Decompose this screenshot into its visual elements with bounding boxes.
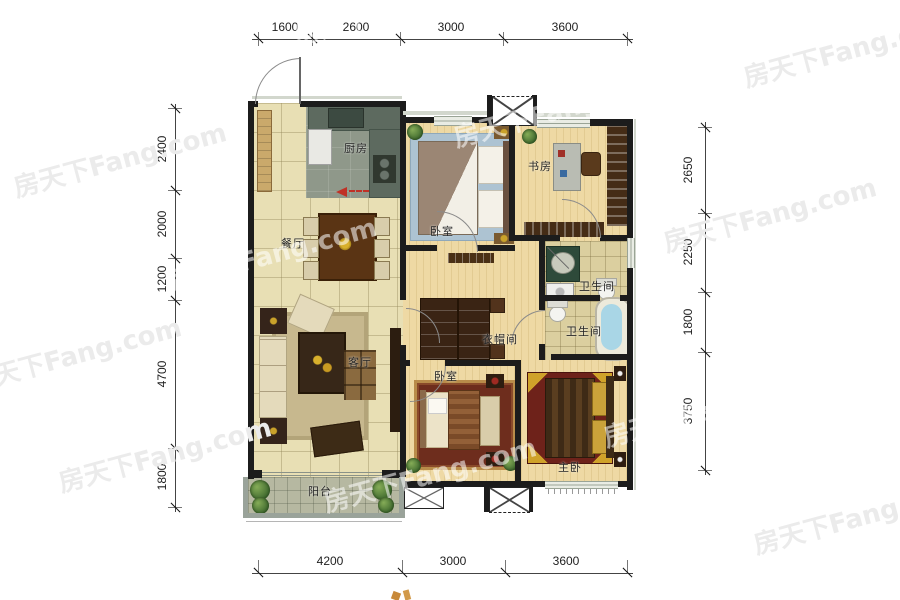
room-label-bedroom-mid: 卧室: [434, 368, 458, 384]
fridge: [308, 129, 332, 165]
balcony-slider-track: [262, 472, 382, 473]
wall: [545, 295, 600, 301]
nightstand: [486, 452, 504, 466]
dimension-line-left: [175, 104, 176, 512]
dresser: [448, 253, 494, 263]
plant: [522, 129, 537, 144]
bathtub-water: [601, 304, 622, 350]
desk-item: [560, 170, 567, 177]
window: [627, 238, 635, 268]
bay-window-box: [404, 487, 444, 509]
plant: [252, 497, 269, 514]
pillow: [478, 146, 504, 184]
window-sill: [403, 111, 489, 115]
headboard: [606, 376, 614, 458]
window: [537, 119, 590, 128]
entry-door-arc: [255, 58, 301, 104]
dimension-label-right-3: 1800: [681, 292, 697, 352]
pillow: [478, 190, 504, 228]
wall: [539, 344, 545, 360]
room-label-study: 书房: [528, 158, 552, 174]
dimension-label-right-2: 2250: [681, 222, 697, 282]
room-label-cloakroom: 衣帽间: [482, 331, 518, 347]
floor-plan-canvas: 厨房 餐厅 客厅 卧室 书房 卫生间 卫生间 衣帽间 卧室 主卧 阳台 1600…: [0, 0, 900, 600]
bookshelf: [607, 126, 627, 226]
room-label-bathroom-upper: 卫生间: [579, 278, 615, 294]
desk-chair: [581, 152, 601, 176]
wall: [248, 103, 254, 479]
balcony-railing: [243, 513, 405, 518]
plant: [407, 124, 423, 140]
wall: [403, 117, 434, 123]
window-sill: [634, 119, 636, 490]
cropped-ornament: [403, 589, 411, 600]
shoe-cabinet: [257, 110, 272, 192]
dimension-label-right-4: 3750: [681, 381, 697, 441]
dimension-line-bottom: [252, 573, 633, 574]
wall: [509, 119, 515, 241]
room-label-bedroom-top: 卧室: [430, 223, 454, 239]
dining-chair: [303, 261, 319, 280]
side-table: [260, 308, 287, 334]
dining-chair: [374, 217, 390, 236]
wall: [551, 354, 633, 360]
wall: [400, 103, 406, 300]
blanket: [448, 390, 480, 450]
sofa: [259, 336, 287, 418]
dimension-line-right: [705, 122, 706, 475]
nightstand: [614, 366, 626, 381]
wall: [627, 119, 633, 238]
dining-chair: [374, 239, 390, 258]
balcony-railing-line: [246, 521, 402, 522]
dining-chair: [303, 239, 319, 258]
wall: [627, 268, 633, 490]
wardrobe-cabinet: [490, 298, 505, 313]
balcony-slider-track: [262, 475, 382, 476]
master-blanket: [545, 378, 595, 458]
dimension-label-top-3: 3000: [421, 20, 481, 34]
room-label-dining: 餐厅: [281, 235, 305, 251]
dimension-label-left-4: 4700: [155, 344, 171, 404]
window-hatch: [548, 489, 618, 494]
stove: [373, 155, 396, 183]
nightstand: [486, 374, 504, 388]
watermark: 房天下Fang.com: [739, 2, 900, 94]
dimension-label-top-4: 3600: [535, 20, 595, 34]
entry-door-leaf: [299, 57, 301, 104]
room-label-living: 客厅: [348, 354, 372, 370]
wall: [515, 235, 560, 241]
dining-chair: [374, 261, 390, 280]
wall: [403, 360, 410, 366]
watermark: 房天下Fang.com: [9, 112, 230, 204]
room-label-master-bedroom: 主卧: [558, 459, 582, 475]
toilet-tank: [547, 300, 568, 308]
wall: [403, 245, 437, 251]
entrance-arrow: [336, 187, 347, 197]
dining-chair: [303, 217, 319, 236]
dimension-label-top-1: 1600: [255, 20, 315, 34]
window: [434, 116, 472, 126]
dimension-label-bottom-2: 3000: [423, 554, 483, 568]
kitchen-sink: [328, 108, 364, 128]
dimension-label-left-2: 2000: [155, 194, 171, 254]
table-bowl: [338, 237, 352, 251]
dimension-label-top-2: 2600: [326, 20, 386, 34]
coffee-table: [298, 332, 346, 394]
wall: [620, 295, 627, 301]
room-label-balcony: 阳台: [308, 483, 332, 499]
balcony-wall: [243, 477, 248, 518]
dimension-line-top: [252, 39, 633, 40]
duct-shaft: [492, 96, 534, 126]
pillow: [428, 398, 447, 414]
desk-item: [558, 150, 565, 157]
wall: [248, 470, 262, 478]
wall: [515, 360, 521, 487]
window-sill: [537, 113, 590, 117]
nightstand: [614, 452, 626, 467]
bench: [480, 396, 500, 446]
dimension-label-left-5: 1800: [155, 447, 171, 507]
side-table: [260, 418, 287, 444]
wall: [618, 481, 633, 487]
room-label-bathroom-lower: 卫生间: [566, 323, 602, 339]
dimension-label-left-1: 2400: [155, 119, 171, 179]
dimension-label-bottom-3: 3600: [536, 554, 596, 568]
wardrobe: [458, 298, 490, 360]
dimension-label-bottom-1: 4200: [300, 554, 360, 568]
wall: [445, 360, 521, 366]
window: [545, 481, 618, 489]
dimension-label-right-1: 2650: [681, 140, 697, 200]
cropped-ornament: [391, 591, 401, 600]
entrance-arrow-tail: [349, 190, 369, 192]
room-label-kitchen: 厨房: [344, 140, 368, 156]
plant: [378, 497, 394, 513]
wall: [477, 245, 515, 251]
plant: [406, 458, 421, 473]
toilet: [549, 306, 566, 322]
wall: [300, 101, 406, 107]
duct-shaft: [489, 487, 530, 513]
dimension-label-left-3: 1200: [155, 249, 171, 309]
watermark: 房天下Fang.com: [749, 469, 900, 561]
